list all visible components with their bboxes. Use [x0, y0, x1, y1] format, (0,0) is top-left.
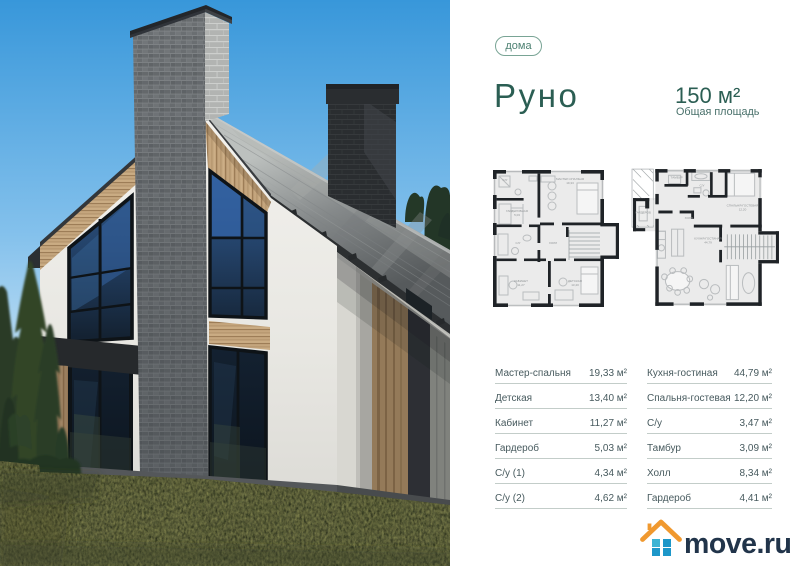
svg-text:ГАРДЕРОБ: ГАРДЕРОБ	[635, 211, 651, 215]
svg-text:11,27: 11,27	[517, 283, 525, 287]
svg-text:ТАМБУР: ТАМБУР	[671, 175, 683, 179]
svg-text:С/У: С/У	[516, 241, 521, 245]
svg-text:44,79: 44,79	[704, 241, 712, 245]
svg-text:13,40: 13,40	[571, 283, 579, 287]
svg-text:С/У: С/У	[503, 178, 508, 182]
svg-text:С/У: С/У	[699, 184, 704, 188]
svg-text:ХОЛЛ: ХОЛЛ	[685, 216, 693, 220]
svg-text:ХОЛЛ: ХОЛЛ	[549, 241, 557, 245]
svg-text:5,03: 5,03	[514, 213, 520, 217]
svg-text:19,33: 19,33	[566, 181, 574, 185]
svg-text:12,20: 12,20	[739, 207, 747, 211]
